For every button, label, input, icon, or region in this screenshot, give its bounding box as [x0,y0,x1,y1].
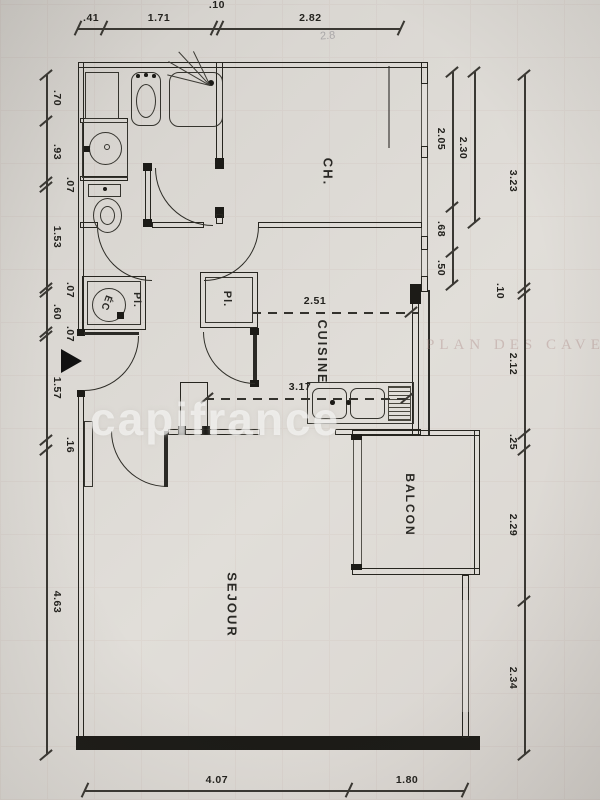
dim-label: .41 [83,12,99,24]
dim-label: .07 [64,282,76,298]
window-sill-line [388,66,390,148]
entry-door-leaf [84,332,139,335]
drain-dot [104,144,110,150]
dim-label: .25 [507,434,519,450]
dim-label: .07 [64,326,76,342]
door-jamb [77,390,85,397]
bidet-bowl [136,84,156,118]
wall [145,168,151,224]
wc-door-arc [97,226,152,281]
wall [352,430,480,436]
drainboard [388,386,411,421]
dim-label: 2.29 [507,514,519,536]
dim-line-right_inner_b [474,72,476,223]
closet-label-pl-left: Pl. [131,292,143,308]
bathroom-door-arc [155,168,213,226]
room-label-sejour: SEJOUR [225,572,240,637]
wall [78,62,428,68]
dim-label: 2.82 [299,12,321,24]
dim-label: .50 [435,260,447,276]
wall [474,430,480,575]
window [421,158,428,236]
bleed-through-text: PLAN DES CAVES [426,337,600,354]
dim-label: 1.71 [148,12,170,24]
room-label-ch: CH. [321,158,336,186]
wall [421,276,428,292]
balcony-window [353,440,362,564]
pencil-note: 2.8 [320,29,336,42]
wall-solid [76,736,480,750]
dim-label: .07 [64,176,76,192]
dim-label: 1.57 [51,377,63,399]
tap-dot [152,74,156,78]
dim-label: .93 [51,144,63,160]
floorplan-photo: { "meta": { "watermark": "capifrance", "… [0,0,600,800]
dim-cuisine-width: 2.51 [304,295,326,307]
window [421,84,428,146]
watermark: capifrance [90,392,340,446]
faucet-dot [346,400,351,405]
dim-label: 3.23 [507,170,519,192]
wall [421,146,428,158]
shower [169,72,223,127]
tap-dot [136,74,140,78]
pillar [410,284,421,304]
closet-label-pl-right: Pl. [221,291,233,307]
flush-dot [103,187,107,191]
dim-label: 4.63 [51,591,63,613]
dim-label: 2.30 [457,136,469,158]
room-label-balcon: BALCON [403,473,417,536]
wall [421,236,428,250]
water-heater-valve [117,312,124,319]
dim-label: 1.80 [396,774,418,786]
cuisine-door-arc [203,332,255,384]
dim-label: 2.12 [507,353,519,375]
dim-dash-line [252,312,418,314]
door-jamb [351,434,362,440]
dim-label: .10 [494,283,506,299]
dim-label: 1.53 [51,226,63,248]
door-jamb [143,163,152,171]
tap-dot [144,73,148,77]
dim-label: .10 [209,0,225,11]
tap [84,146,90,152]
sink-basin [350,388,385,419]
wall [421,62,428,84]
dim-line-left [46,75,48,755]
dim-label: 2.34 [507,667,519,689]
dim-label: .70 [51,90,63,106]
entry-arrow-icon [61,349,82,373]
dim-label: 4.07 [206,774,228,786]
closet [85,72,119,119]
window [462,600,469,712]
door-jamb [215,158,224,169]
wall [258,222,422,228]
entry-door-arc [84,336,139,391]
window [421,250,428,276]
wall [352,568,480,575]
dim-label: 2.05 [435,128,447,150]
door-jamb [351,564,362,570]
wall [216,214,223,224]
dim-line-bottom [85,790,465,792]
room-label-cuisine: CUISINE [315,320,329,385]
dim-label: .68 [435,221,447,237]
dim-label: .16 [64,437,76,453]
wall-edge [428,290,430,435]
dim-label: .60 [51,304,63,320]
dim-line-top [78,28,401,30]
dim-line-right_outer [524,75,526,755]
toilet-bowl-inner [100,206,115,225]
